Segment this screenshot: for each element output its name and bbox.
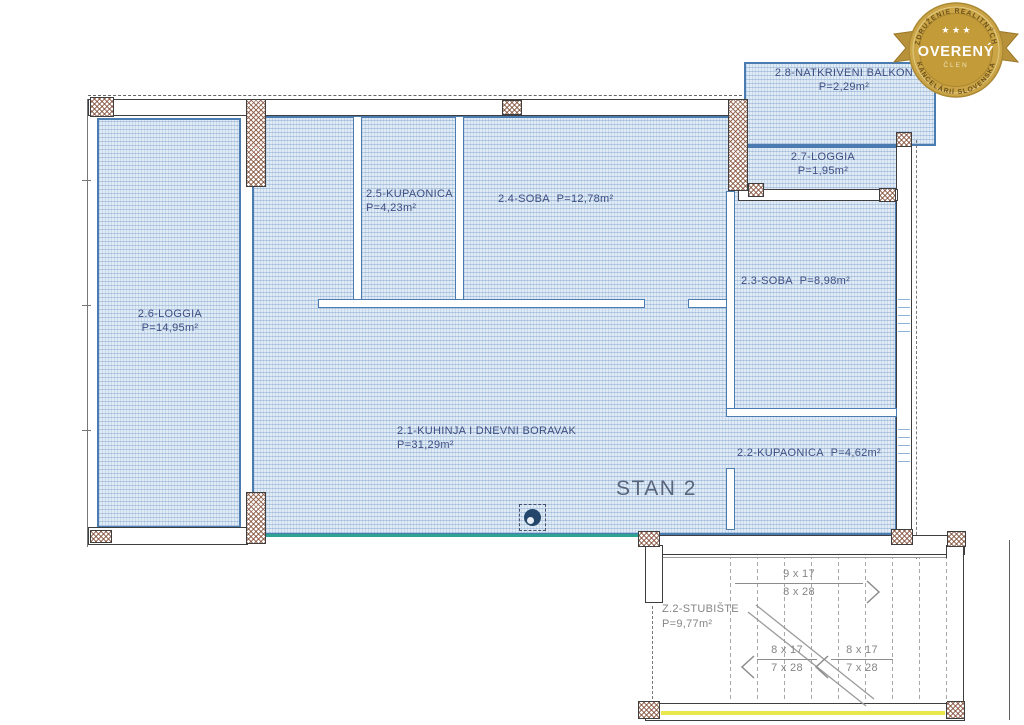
stair-edge-yellow-line (661, 711, 945, 715)
verified-badge: ZDRUŽENIE REALITNÝCH KANCELÁRIÍ SLOVENSK… (888, 0, 1024, 104)
riser-count: 8 x 17 (831, 643, 893, 660)
pier-stair-tm (891, 529, 913, 545)
wall-bath22-left (726, 468, 735, 530)
room-label-soba-24: 2.4-SOBA P=12,78m² (498, 192, 613, 206)
room-area: P=4,62m² (831, 447, 881, 459)
room-label-stairs-z2: Z.2-STUBIŠTE P=9,77m² (662, 602, 739, 632)
wall-right (896, 140, 912, 535)
wall-bath25-left (353, 116, 362, 308)
room-area: P=31,29m² (397, 438, 576, 452)
wall-soba24-bottom (318, 299, 645, 308)
column-top-1 (246, 99, 266, 187)
wall-soba23-bath22 (726, 408, 897, 417)
floor-plan-page: 9 x 17 8 x 28 8 x 17 7 x 28 8 x 17 7 x 2… (0, 0, 1024, 725)
room-label-kitchen-21: 2.1-KUHINJA I DNEVNI BORAVAK P=31,29m² (397, 424, 576, 453)
pier-stair-tl (638, 531, 660, 547)
room-name: 2.6-LOGGIA (108, 307, 232, 321)
arrow-left-icon (813, 653, 831, 681)
stair-outer-line-right (1009, 540, 1010, 720)
pier-right-2 (879, 188, 896, 202)
wall-bath25-soba24 (455, 116, 464, 308)
unit-title: STAN 2 (616, 477, 697, 501)
wall-bottom-left (88, 527, 248, 545)
arrow-left-icon (739, 653, 757, 681)
badge-stars-icon: ★ ★ ★ (941, 25, 970, 35)
wall-soba23-left (726, 191, 735, 417)
wall-stair-right (946, 545, 964, 713)
pier-top-mid (502, 100, 522, 115)
arrow-right-icon (864, 578, 882, 606)
dimension-tick (82, 180, 91, 181)
pier-loggia27-corner (748, 183, 764, 197)
badge-title: OVERENÝ (918, 42, 995, 60)
room-area: P=8,98m² (800, 275, 850, 287)
room-label-bath-22: 2.2-KUPAONICA P=4,62m² (737, 446, 881, 460)
riser-count: 9 x 17 (735, 567, 863, 584)
column-top-2 (728, 99, 748, 191)
riser-count: 8 x 17 (757, 643, 817, 660)
stair-flight-b-label: 8 x 17 7 x 28 (831, 643, 893, 676)
wall-stair-left (645, 545, 663, 603)
dimension-tick (82, 305, 91, 306)
room-area: P=4,23m² (366, 201, 453, 215)
dimension-tick-line-top (88, 95, 742, 96)
wall-left-line (87, 99, 88, 547)
wall-stair-top (645, 535, 965, 555)
pier-top-left (90, 97, 114, 117)
room-name: 2.3-SOBA (741, 275, 793, 287)
room-name: 2.4-SOBA (498, 193, 550, 205)
room-area: P=14,95m² (108, 321, 232, 335)
floor-drain-icon (519, 504, 546, 531)
room-name: 2.1-KUHINJA I DNEVNI BORAVAK (397, 424, 576, 438)
room-label-loggia-27: 2.7-LOGGIA P=1,95m² (752, 150, 894, 179)
pier-bottom-left (90, 530, 112, 543)
room-area: P=9,77m² (662, 617, 739, 632)
pier-stair-bl (638, 701, 660, 719)
tread-size: 7 x 28 (757, 660, 817, 676)
stair-dashed-left (652, 606, 653, 704)
room-name: 2.7-LOGGIA (752, 150, 894, 164)
stair-flight-a-label: 8 x 17 7 x 28 (757, 643, 817, 676)
boundary-dashed-line-right (916, 140, 917, 560)
room-area: P=12,78m² (557, 193, 614, 205)
tread-size: 8 x 28 (735, 584, 863, 600)
pier-right-1 (896, 132, 912, 147)
wall-top (88, 99, 742, 116)
room-label-soba-23: 2.3-SOBA P=8,98m² (741, 274, 850, 288)
room-name: 2.5-KUPAONICA (366, 187, 453, 201)
stair-flight-up-label: 9 x 17 8 x 28 (735, 567, 863, 600)
pier-stair-br (946, 701, 965, 719)
tread-size: 7 x 28 (831, 660, 893, 676)
terrace-edge-green-line (266, 534, 646, 537)
room-area: P=1,95m² (752, 164, 894, 178)
window-right-lower (898, 428, 910, 462)
dimension-tick (82, 430, 91, 431)
room-label-loggia-26: 2.6-LOGGIA P=14,95m² (108, 307, 232, 336)
room-label-bath-25: 2.5-KUPAONICA P=4,23m² (366, 187, 453, 216)
room-name: Z.2-STUBIŠTE (662, 602, 739, 617)
room-name: 2.2-KUPAONICA (737, 447, 824, 459)
column-bottom-1 (246, 492, 266, 544)
window-right-upper (898, 298, 910, 332)
pier-stair-tr (947, 531, 966, 547)
badge-member: ČLEN (943, 60, 968, 69)
